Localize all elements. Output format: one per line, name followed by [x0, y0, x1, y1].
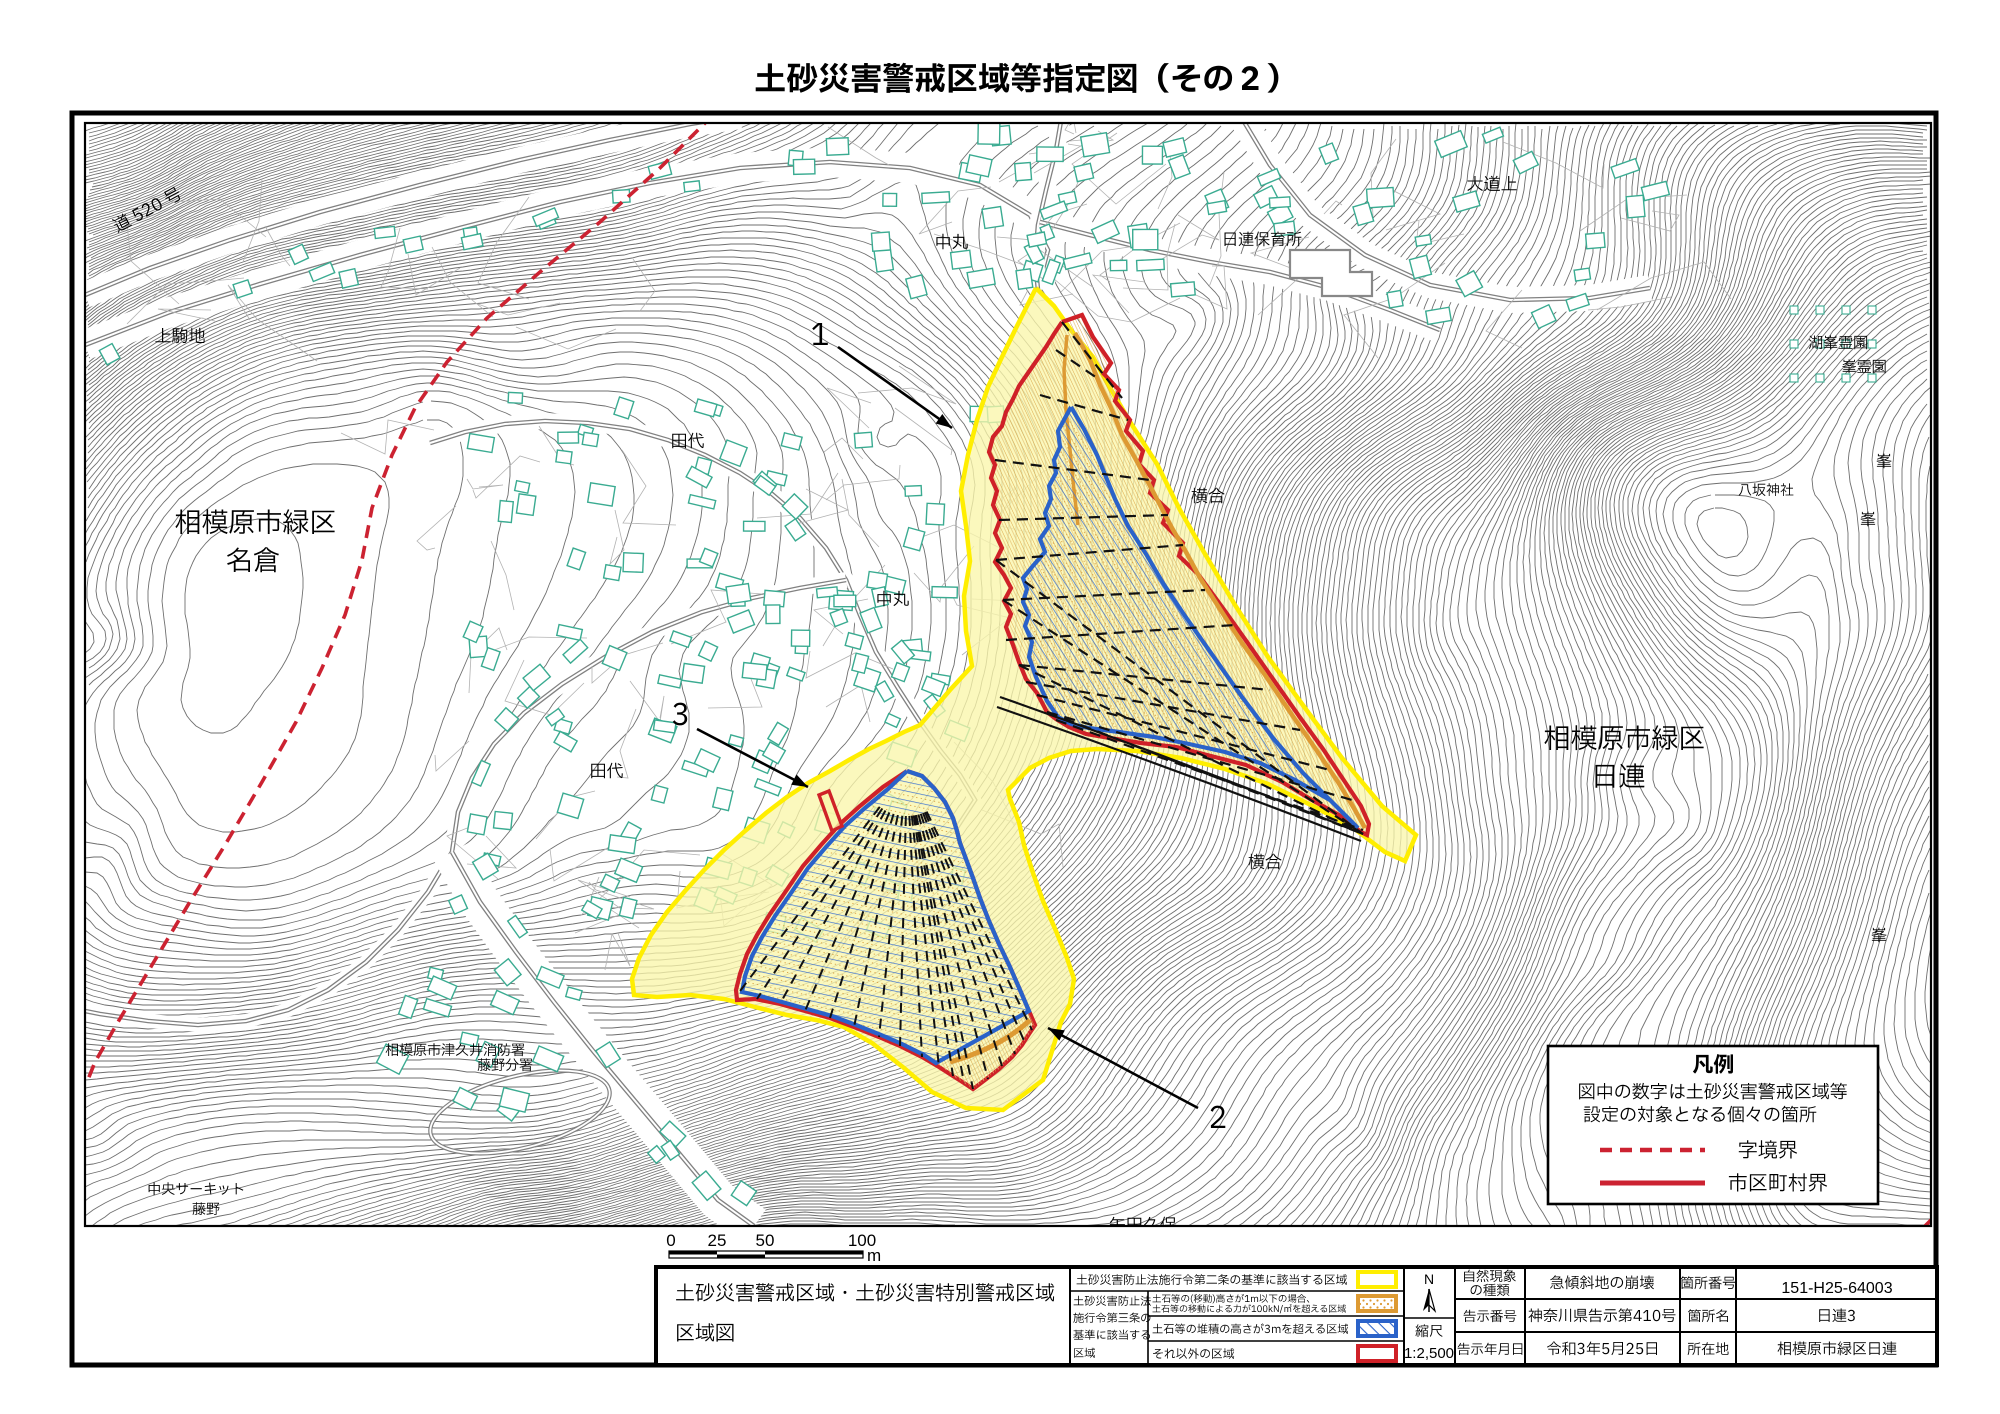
svg-text:N: N	[1424, 1271, 1434, 1287]
svg-text:151-H25-64003: 151-H25-64003	[1781, 1280, 1892, 1297]
svg-text:50: 50	[756, 1231, 775, 1250]
svg-text:m: m	[867, 1246, 881, 1265]
svg-text:0: 0	[666, 1231, 675, 1250]
svg-text:25: 25	[708, 1231, 727, 1250]
svg-text:1:2,500: 1:2,500	[1404, 1345, 1454, 1362]
